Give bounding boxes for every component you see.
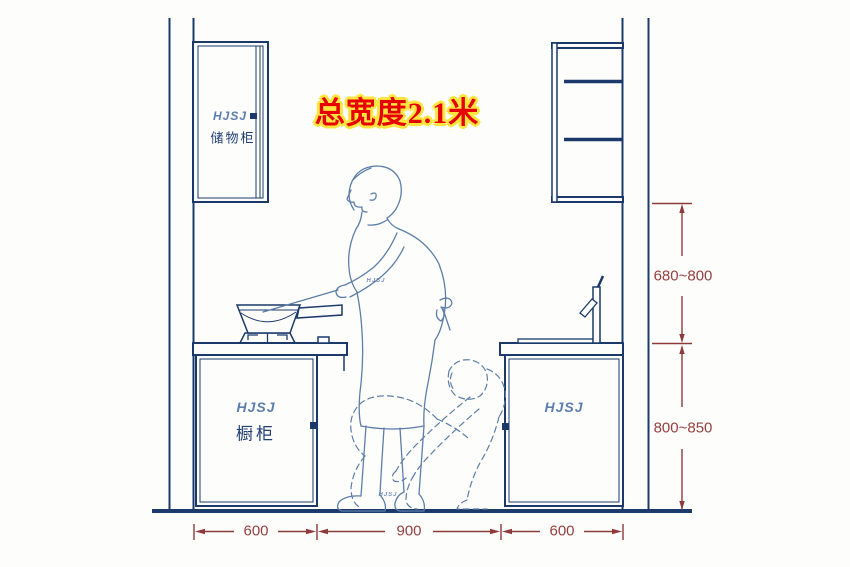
total-width-title: 总宽度2.1米: [315, 88, 480, 132]
head: [349, 166, 401, 218]
left-base-cabinet-label: 橱柜: [236, 420, 276, 445]
ghost-leg: [467, 417, 499, 500]
ghost-arm: [396, 397, 470, 471]
ghost-foot: [457, 500, 487, 509]
left-wall: [170, 18, 194, 511]
kitchen-elevation-drawing: 总宽度2.1米 HJSJ 储物柜 HJSJ 橱柜 HJSJ HJSJ HJSJ …: [0, 0, 850, 567]
drawing-linework: [0, 0, 850, 567]
right-shelf-unit: [552, 43, 623, 202]
dim-right-cabinet-width: 600: [547, 523, 576, 540]
figure-shoe-logo: HJSJ: [378, 492, 397, 498]
right-wall: [623, 18, 649, 511]
left-countertop: [193, 343, 347, 355]
cabinet-handle: [250, 113, 257, 119]
ghost-back: [487, 369, 505, 417]
dim-counter-height: 800~850: [652, 420, 715, 437]
sink-rim: [518, 339, 600, 343]
back: [399, 229, 446, 340]
apron-bow: [437, 298, 453, 321]
wok: [237, 305, 300, 333]
apron: [357, 292, 363, 426]
right-base-cabinet-logo: HJSJ: [544, 399, 583, 415]
igniter-knob: [318, 337, 329, 343]
wok-handle: [297, 305, 342, 318]
left-upper-cabinet-logo: HJSJ: [213, 109, 247, 123]
shoe: [395, 492, 425, 511]
right-countertop: [500, 343, 623, 355]
faucet: [580, 276, 603, 343]
stove-and-wok: [237, 290, 342, 343]
dim-upper-cabinet-to-counter: 680~800: [652, 268, 715, 285]
figure-waist-logo: HJSJ: [366, 278, 385, 284]
cabinet-handle: [310, 422, 317, 429]
left-base-cabinet-logo: HJSJ: [236, 399, 275, 415]
ghost-head: [448, 360, 487, 400]
hand: [336, 285, 346, 297]
dim-aisle-width: 900: [394, 523, 423, 540]
right-base-cabinet: [500, 276, 623, 506]
cabinet-handle: [502, 423, 509, 430]
cook-figure: [336, 166, 452, 511]
ghost-hand: [392, 471, 406, 482]
dimension-right-vertical: [652, 204, 692, 511]
left-upper-cabinet-label: 储物柜: [210, 128, 255, 147]
dim-left-cabinet-width: 600: [241, 523, 270, 540]
